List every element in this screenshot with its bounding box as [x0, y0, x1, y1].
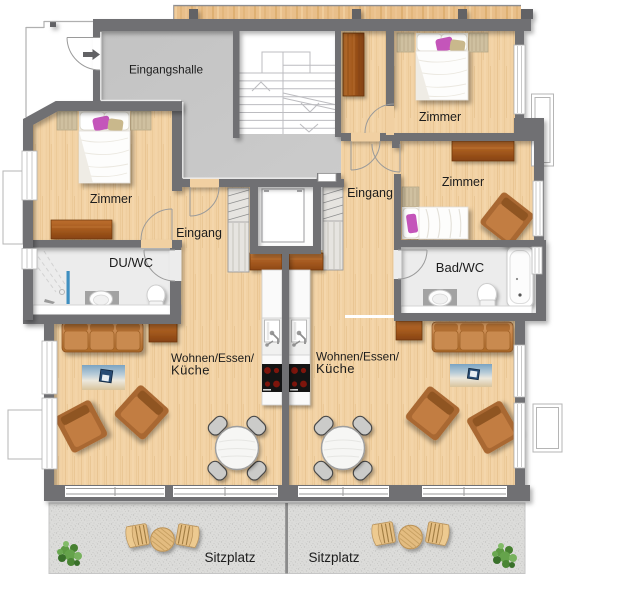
- svg-text:Bad/WC: Bad/WC: [436, 260, 484, 275]
- svg-text:Küche: Küche: [316, 361, 355, 376]
- svg-text:DU/WC: DU/WC: [109, 255, 153, 270]
- svg-text:Eingang: Eingang: [347, 186, 393, 200]
- svg-text:Sitzplatz: Sitzplatz: [204, 550, 255, 565]
- svg-text:Zimmer: Zimmer: [90, 192, 132, 206]
- svg-text:Küche: Küche: [171, 363, 210, 378]
- svg-text:Sitzplatz: Sitzplatz: [308, 550, 359, 565]
- svg-text:Zimmer: Zimmer: [419, 110, 461, 124]
- svg-text:Eingang: Eingang: [176, 226, 222, 240]
- svg-text:Eingangshalle: Eingangshalle: [129, 63, 204, 77]
- svg-text:Zimmer: Zimmer: [442, 175, 484, 189]
